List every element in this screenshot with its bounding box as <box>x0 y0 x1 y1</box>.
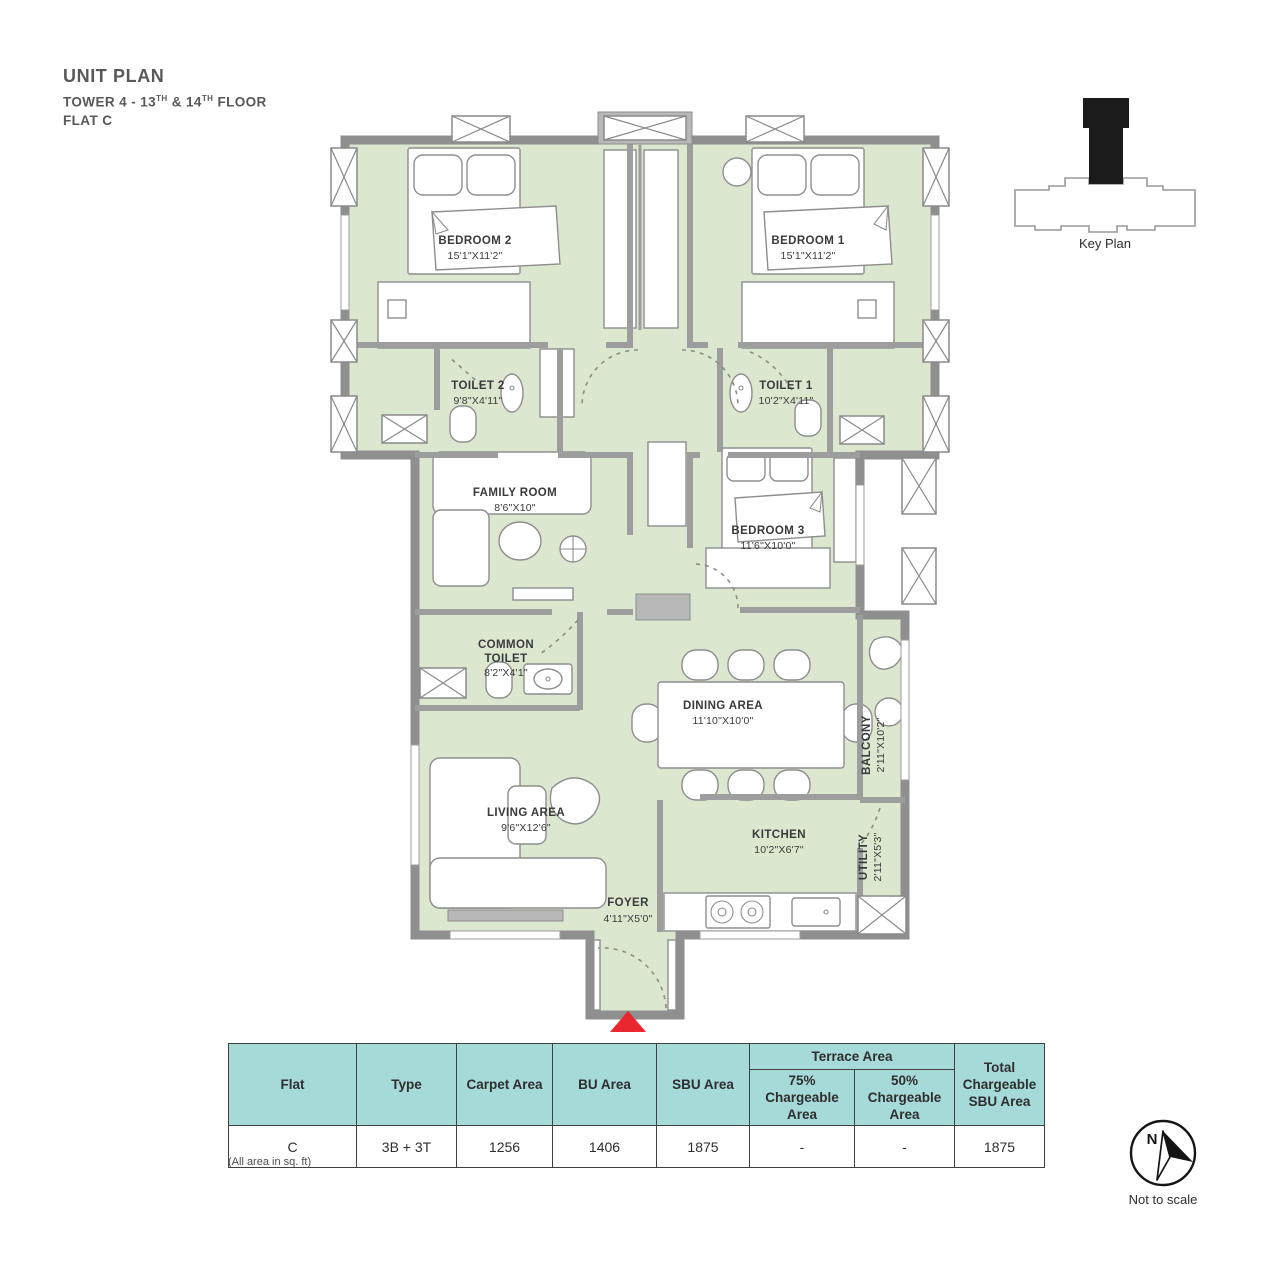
foyer-dims: 4'11"X5'0" <box>604 913 653 925</box>
common-toilet-label-2: TOILET <box>484 653 527 665</box>
toilet2-dims: 9'8"X4'11" <box>454 395 503 407</box>
cell-type: 3B + 3T <box>357 1126 457 1168</box>
key-plan-flat-c-highlight <box>1083 98 1129 184</box>
family-room-label: FAMILY ROOM <box>473 487 557 499</box>
family-room-dims: 8'6"X10" <box>494 502 535 514</box>
tower-text: TOWER 4 - 13 <box>63 95 156 110</box>
balcony-dims: 2'11"X10'2" <box>875 717 887 772</box>
col-header-total-sbu: Total Chargeable SBU Area <box>955 1044 1045 1126</box>
compass-n-letter: N <box>1147 1131 1158 1148</box>
bedroom2-label: BEDROOM 2 <box>438 235 511 247</box>
cell-sbu-area: 1875 <box>657 1126 750 1168</box>
col-header-terrace-area: Terrace Area <box>750 1044 955 1070</box>
common-toilet-dims: 8'2"X4'1" <box>484 667 528 679</box>
bedroom1-label: BEDROOM 1 <box>771 235 844 247</box>
kitchen-dims: 10'2"X6'7" <box>754 844 804 856</box>
north-compass: N <box>1126 1116 1200 1190</box>
area-unit-note: (All area in sq. ft) <box>228 1156 311 1168</box>
floor-plan: BEDROOM 2 15'1"X11'2" BEDROOM 1 15'1"X11… <box>315 95 960 1050</box>
toilet1-dims: 10'2"X4'11" <box>759 395 814 407</box>
table-row: C 3B + 3T 1256 1406 1875 - - 1875 <box>229 1126 1045 1168</box>
toilet1-label: TOILET 1 <box>759 380 813 392</box>
col-header-75-chargeable: 75% Chargeable Area <box>750 1070 855 1126</box>
dining-label: DINING AREA <box>683 700 763 712</box>
top-shaft-xbox <box>604 116 686 140</box>
bedroom3-dims: 11'6"X10'0" <box>741 540 796 552</box>
page-title: UNIT PLAN <box>63 66 267 87</box>
cell-50-chargeable: - <box>855 1126 955 1168</box>
utility-label: UTILITY <box>858 834 870 880</box>
col-header-sbu-area: SBU Area <box>657 1044 750 1126</box>
foyer-label: FOYER <box>607 897 649 909</box>
key-plan-label: Key Plan <box>1005 236 1205 251</box>
cell-bu-area: 1406 <box>553 1126 657 1168</box>
tower-text-mid: & 14 <box>168 95 202 110</box>
kitchen-label: KITCHEN <box>752 829 806 841</box>
tower-floor-line: TOWER 4 - 13TH & 14TH FLOOR <box>63 90 267 112</box>
dining-dims: 11'10"X10'0" <box>693 715 754 727</box>
toilet2-label: TOILET 2 <box>451 380 504 392</box>
cell-75-chargeable: - <box>750 1126 855 1168</box>
bedroom1-dims: 15'1"X11'2" <box>781 250 836 262</box>
unit-plan-page: { "header": { "title": "UNIT PLAN", "tow… <box>0 0 1280 1280</box>
utility-dims: 2'11"X5'3" <box>872 832 884 881</box>
col-header-bu-area: BU Area <box>553 1044 657 1126</box>
bedroom2-dims: 15'1"X11'2" <box>448 250 503 262</box>
col-header-50-chargeable: 50% Chargeable Area <box>855 1070 955 1126</box>
area-table: Flat Type Carpet Area BU Area SBU Area T… <box>228 1043 1045 1168</box>
living-label: LIVING AREA <box>487 807 565 819</box>
common-toilet-label-1: COMMON <box>478 639 534 651</box>
flat-line: FLAT C <box>63 112 267 130</box>
not-to-scale-note: Not to scale <box>1100 1192 1226 1207</box>
cell-total-sbu: 1875 <box>955 1126 1045 1168</box>
balcony-label: BALCONY <box>861 715 873 775</box>
kitchen-counter-icon <box>664 893 856 931</box>
col-header-flat: Flat <box>229 1044 357 1126</box>
floor-sup-2: TH <box>202 94 213 103</box>
key-plan-diagram <box>1005 92 1205 242</box>
key-plan-building-outline <box>1015 178 1195 232</box>
bedroom3-label: BEDROOM 3 <box>731 525 804 537</box>
col-header-carpet-area: Carpet Area <box>457 1044 553 1126</box>
cell-carpet-area: 1256 <box>457 1126 553 1168</box>
floor-sup-1: TH <box>156 94 167 103</box>
title-block: UNIT PLAN TOWER 4 - 13TH & 14TH FLOOR FL… <box>63 66 267 130</box>
tower-text-suffix: FLOOR <box>213 95 266 110</box>
col-header-type: Type <box>357 1044 457 1126</box>
living-dims: 9'6"X12'6" <box>501 822 551 834</box>
